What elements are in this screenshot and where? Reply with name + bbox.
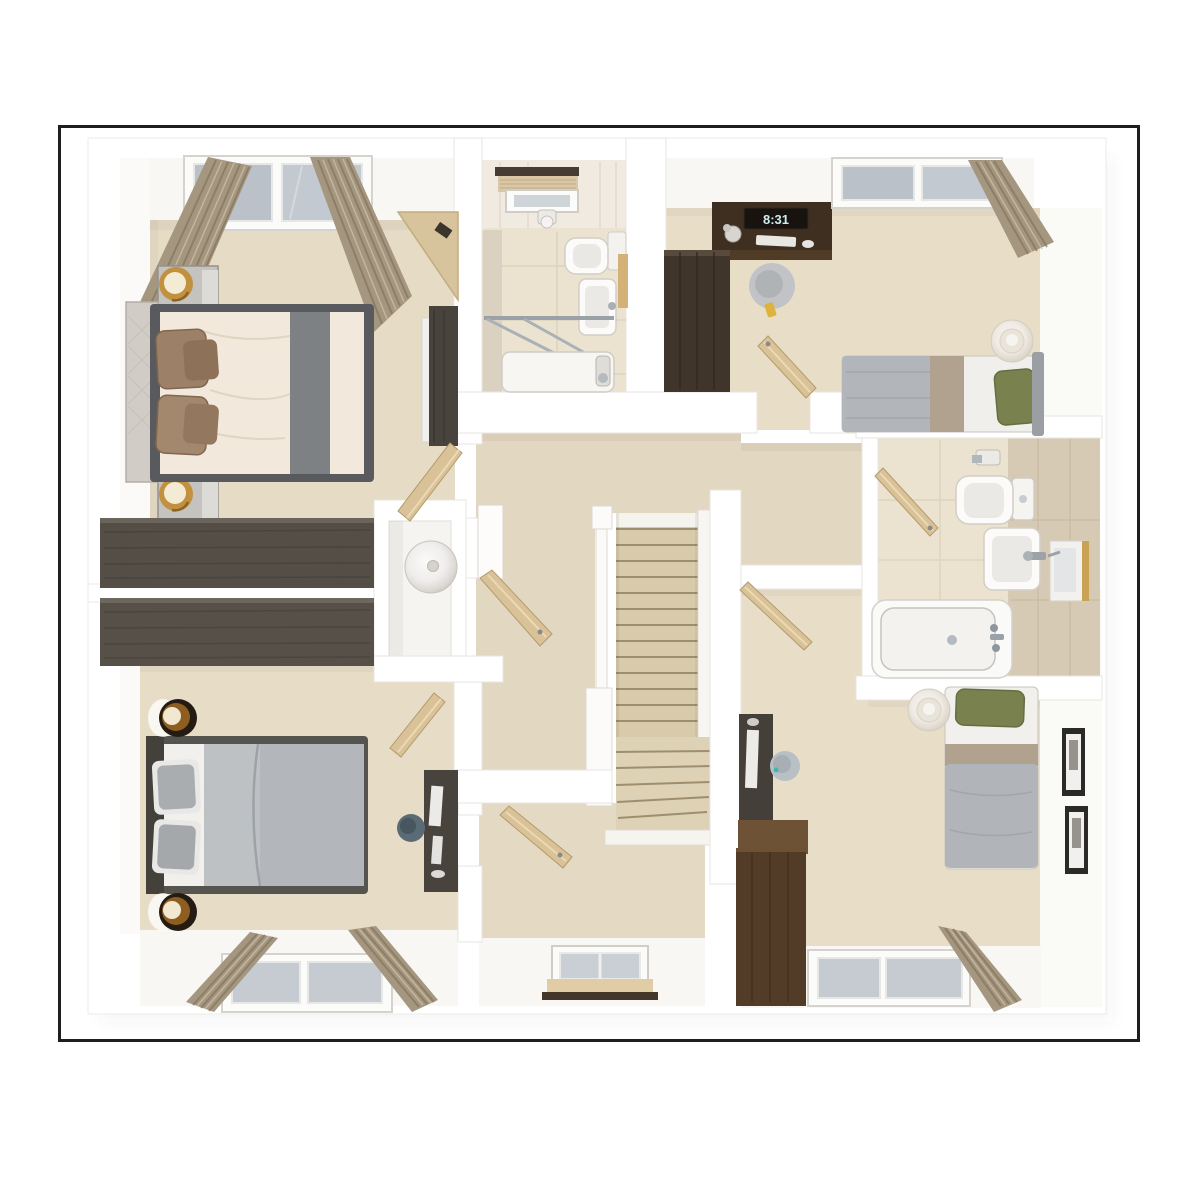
svg-text:8:31: 8:31 — [763, 212, 789, 227]
